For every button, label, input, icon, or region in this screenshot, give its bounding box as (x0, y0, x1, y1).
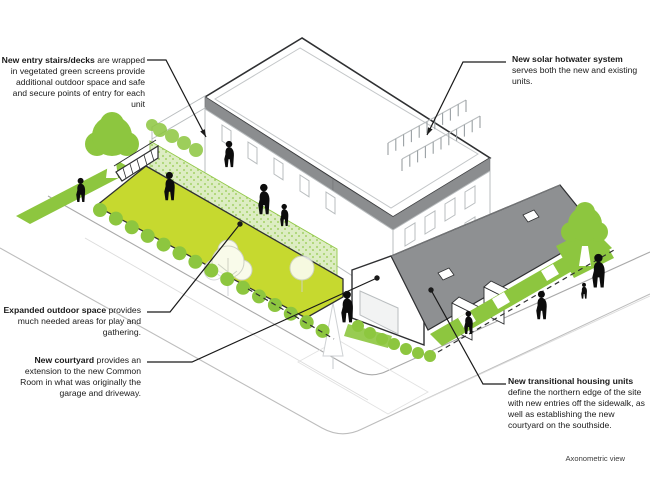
annotation-transitional-housing: New transitional housing units define th… (508, 376, 646, 431)
annotation-lead: New courtyard (34, 355, 94, 365)
annotation-body: serves both the new and existing units. (512, 65, 637, 86)
annotation-body: define the northern edge of the site wit… (508, 387, 645, 430)
leader-dot (428, 287, 433, 292)
leader-dot (374, 275, 379, 280)
annotation-lead: Expanded outdoor space (3, 305, 106, 315)
annotation-solar-hotwater: New solar hotwater system serves both th… (512, 54, 648, 87)
leader-dot (237, 221, 242, 226)
axonometric-diagram: New entry stairs/decks are wrapped in ve… (0, 0, 650, 502)
view-caption: Axonometric view (493, 454, 625, 463)
annotation-new-courtyard: New courtyard provides an extension to t… (0, 355, 141, 399)
annotation-entry-stairs: New entry stairs/decks are wrapped in ve… (0, 55, 145, 110)
annotation-lead: New transitional housing units (508, 376, 633, 386)
annotation-lead: New entry stairs/decks (2, 55, 95, 65)
annotation-lead: New solar hotwater system (512, 54, 623, 64)
annotation-expanded-outdoor-space: Expanded outdoor space provides much nee… (0, 305, 141, 338)
